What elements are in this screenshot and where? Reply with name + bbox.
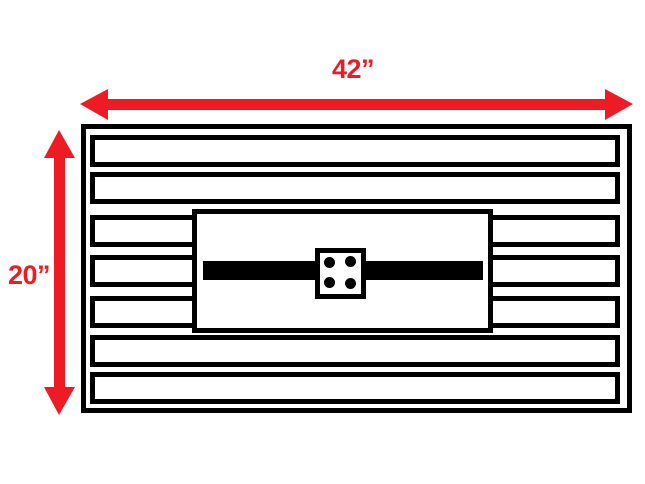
width-arrow-line: [104, 99, 609, 110]
height-arrow-line: [54, 154, 65, 391]
arrow-down-head-icon: [44, 387, 75, 415]
bolt-hole: [324, 277, 335, 288]
bolt-hole: [345, 278, 356, 289]
slat-7: [90, 372, 620, 404]
bolt-hole: [345, 256, 356, 267]
bolt-hole: [324, 257, 335, 268]
width-dimension-arrow: [80, 89, 633, 120]
dimension-diagram: 42” 20”: [0, 0, 645, 484]
arrow-right-head-icon: [605, 89, 633, 120]
bolt-plate: [315, 248, 366, 299]
height-dimension-arrow: [44, 130, 75, 415]
width-dimension-label: 42”: [308, 55, 398, 83]
slat-2: [90, 172, 620, 204]
slat-1: [90, 135, 620, 167]
slat-6: [90, 335, 620, 367]
